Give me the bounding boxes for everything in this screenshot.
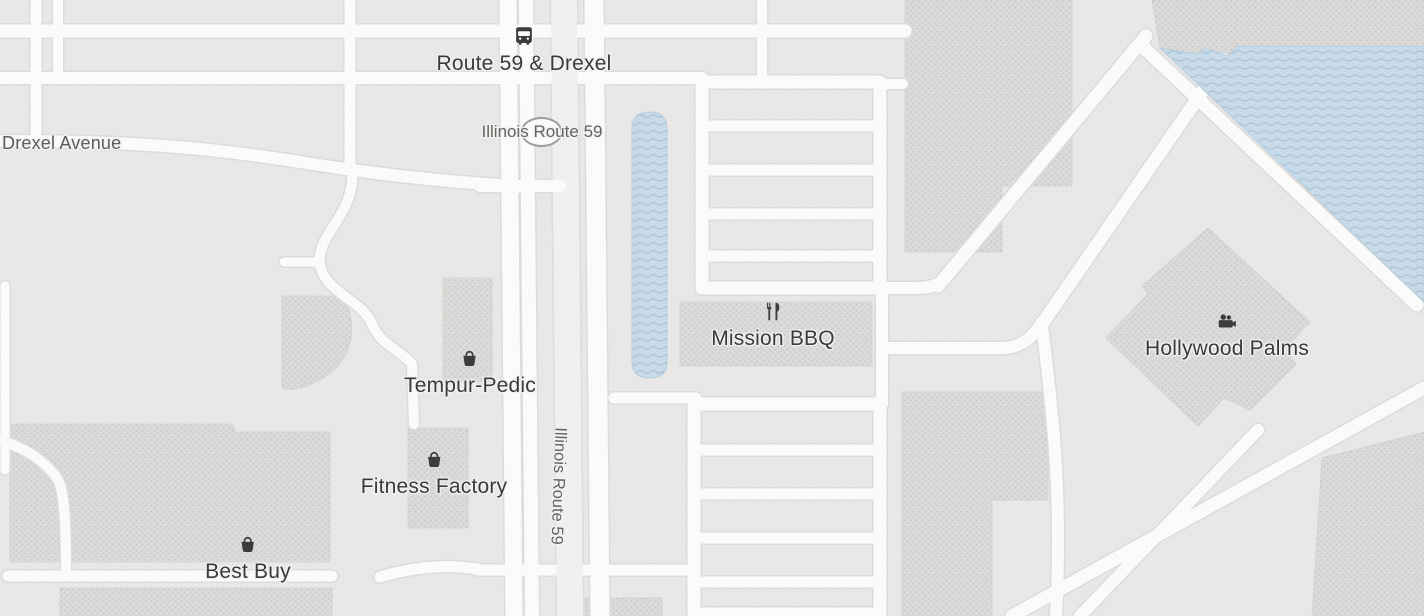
poi-best-buy[interactable]: Best Buy — [205, 534, 291, 584]
poi-label: Mission BBQ — [711, 327, 835, 351]
poi-mission-bbq[interactable]: Mission BBQ — [711, 301, 835, 351]
poi-label: Tempur-Pedic — [404, 374, 536, 398]
poi-hollywood-palms[interactable]: Hollywood Palms — [1145, 311, 1309, 361]
poi-label: Hollywood Palms — [1145, 337, 1309, 361]
shopping-bag-icon — [459, 348, 480, 369]
route-shield-illinois-59: Illinois Route 59 — [482, 122, 603, 142]
restaurant-icon — [762, 301, 783, 322]
transit-stop-label: Route 59 & Drexel — [437, 52, 612, 76]
movie-camera-icon — [1217, 311, 1238, 332]
poi-fitness-factory[interactable]: Fitness Factory — [361, 449, 508, 499]
route-shield-label: Illinois Route 59 — [482, 122, 603, 142]
transit-stop-route-59-drexel[interactable]: Route 59 & Drexel — [437, 25, 612, 76]
poi-label: Best Buy — [205, 560, 291, 584]
poi-tempur-pedic[interactable]: Tempur-Pedic — [404, 348, 536, 398]
bus-icon — [514, 25, 535, 46]
street-label-drexel-avenue: Drexel Avenue — [2, 133, 121, 154]
shopping-bag-icon — [238, 534, 259, 555]
map-canvas[interactable]: Route 59 & Drexel Illinois Route 59 Drex… — [0, 0, 1424, 616]
poi-label: Fitness Factory — [361, 475, 508, 499]
shopping-bag-icon — [423, 449, 444, 470]
